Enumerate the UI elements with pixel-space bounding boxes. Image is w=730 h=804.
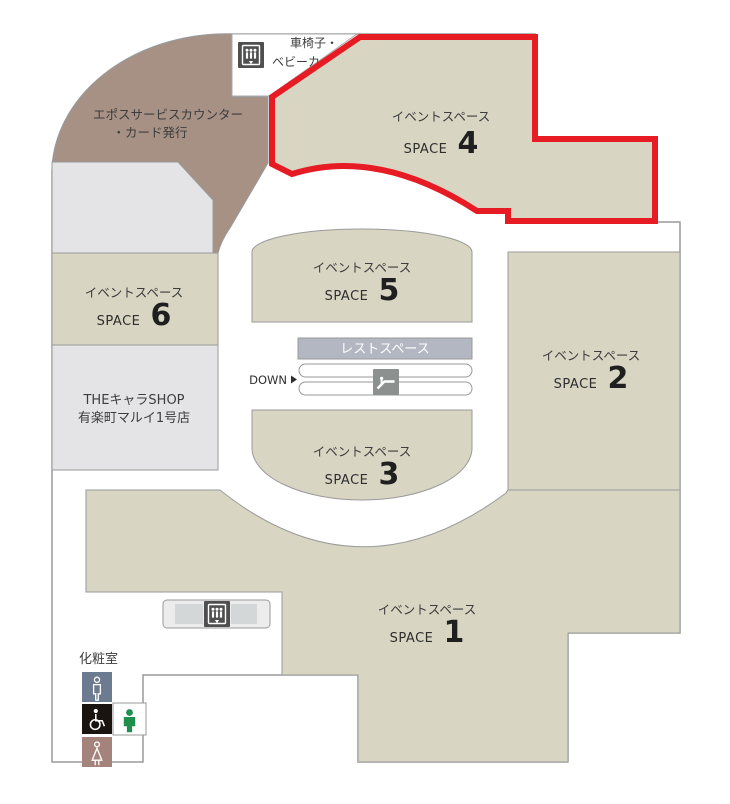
baby-care-icon (113, 703, 146, 735)
space-4-title: イベントスペース (392, 109, 491, 124)
elevator-cab-right (231, 604, 257, 624)
floor-map: エポスサービスカウンター ・カード発行 イベントスペース SPACE 6 THE… (0, 0, 730, 800)
space-5-area (252, 229, 472, 322)
gray-area (52, 162, 213, 253)
wheelchair-restroom-icon (82, 704, 112, 734)
epos-label-line1: エポスサービスカウンター (93, 107, 243, 122)
escalator-down-label: DOWN (249, 373, 287, 387)
elevator-icon (204, 601, 230, 627)
epos-label-line2: ・カード発行 (112, 125, 187, 140)
rest-space-label: レストスペース (340, 342, 429, 357)
elevator-icon (238, 42, 264, 68)
escalator-icon (373, 369, 399, 395)
women-restroom-icon (82, 737, 112, 767)
elevator-cab-left (175, 604, 203, 624)
chara-shop-line1: THEキャラSHOP (82, 393, 184, 408)
elevator-bank (163, 600, 270, 628)
men-restroom-icon (82, 672, 112, 702)
floor-map-svg: エポスサービスカウンター ・カード発行 イベントスペース SPACE 6 THE… (0, 0, 730, 800)
restroom-label: 化粧室 (79, 651, 118, 667)
chara-shop-line2: 有楽町マルイ1号店 (78, 410, 190, 426)
space-2-area (508, 252, 680, 490)
top-elevator-line1: 車椅子・ (290, 36, 338, 50)
